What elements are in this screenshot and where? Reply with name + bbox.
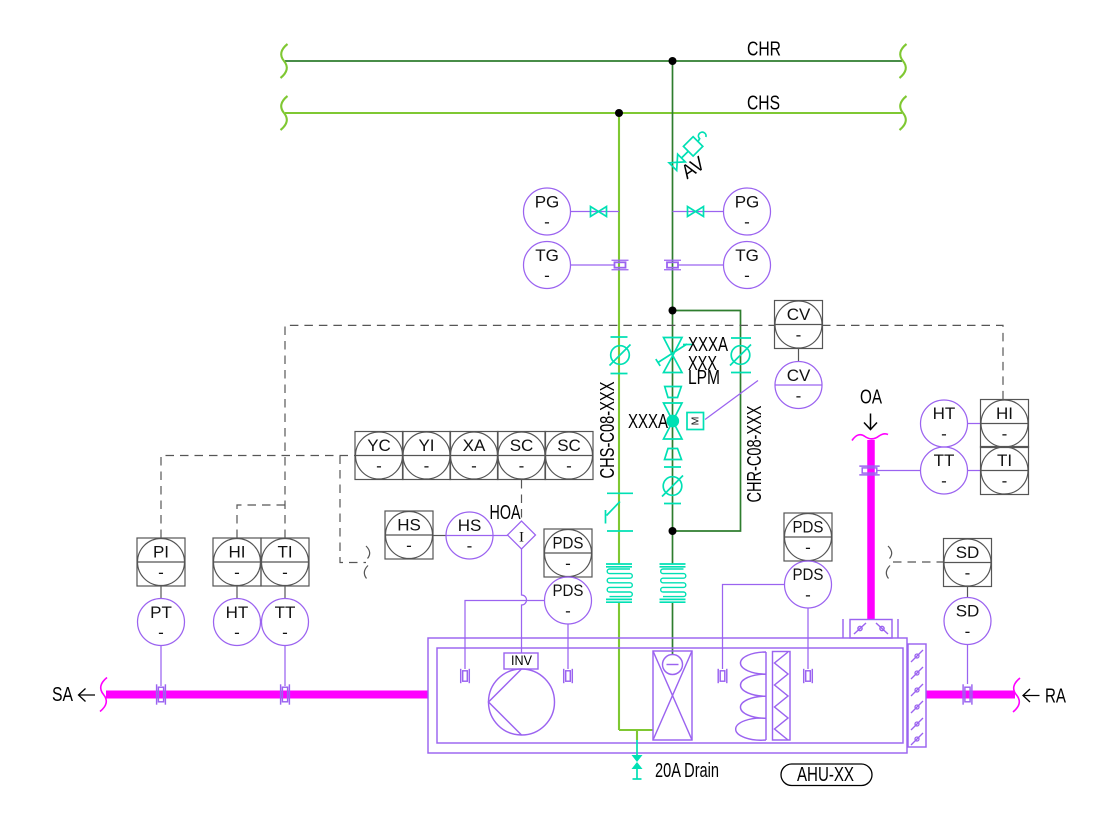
svg-text:PT: PT <box>150 603 172 622</box>
svg-text:SC: SC <box>557 436 581 455</box>
svg-text:PDS: PDS <box>793 518 824 537</box>
svg-text:RA: RA <box>1045 686 1066 708</box>
svg-text:TI: TI <box>997 451 1012 470</box>
svg-text:HT: HT <box>226 603 249 622</box>
svg-text:CV: CV <box>787 305 811 324</box>
svg-text:-: - <box>376 457 382 476</box>
svg-text:PG: PG <box>735 193 760 212</box>
svg-text:-: - <box>796 326 802 345</box>
svg-text:-: - <box>941 425 947 444</box>
svg-text:20A Drain: 20A Drain <box>655 760 719 782</box>
svg-text:-: - <box>424 457 430 476</box>
svg-text:SD: SD <box>956 602 980 621</box>
svg-text:M: M <box>690 417 702 426</box>
svg-text:PG: PG <box>535 193 560 212</box>
svg-text:-: - <box>519 457 525 476</box>
svg-text:SD: SD <box>956 543 980 562</box>
svg-text:CV: CV <box>787 366 811 385</box>
svg-text:-: - <box>234 623 240 642</box>
svg-text:CHR-C08-XXX: CHR-C08-XXX <box>744 406 766 503</box>
svg-text:-: - <box>566 457 572 476</box>
svg-text:HI: HI <box>229 543 246 562</box>
svg-text:-: - <box>1002 425 1008 444</box>
svg-text:-: - <box>158 623 164 642</box>
svg-text:CHS-C08-XXX: CHS-C08-XXX <box>597 382 619 479</box>
svg-text:-: - <box>796 387 802 406</box>
svg-text:HS: HS <box>458 516 482 535</box>
svg-text:PDS: PDS <box>793 565 824 584</box>
svg-text:I: I <box>519 530 524 546</box>
svg-text:TT: TT <box>275 603 296 622</box>
svg-text:HS: HS <box>397 516 421 535</box>
svg-text:TG: TG <box>535 246 559 265</box>
svg-text:-: - <box>941 472 947 491</box>
svg-text:YC: YC <box>367 436 391 455</box>
svg-text:-: - <box>234 563 240 582</box>
svg-text:PDS: PDS <box>553 581 584 600</box>
svg-text:-: - <box>744 266 750 285</box>
svg-text:OA: OA <box>860 387 882 409</box>
svg-text:TG: TG <box>735 246 759 265</box>
svg-text:CHR: CHR <box>747 39 781 61</box>
svg-text:-: - <box>282 563 288 582</box>
svg-text:-: - <box>406 536 412 555</box>
svg-text:TT: TT <box>934 451 955 470</box>
svg-text:TI: TI <box>277 543 292 562</box>
svg-text:HI: HI <box>996 404 1013 423</box>
svg-text:XA: XA <box>463 436 486 455</box>
svg-text:-: - <box>544 213 550 232</box>
svg-text:HOA: HOA <box>490 502 521 524</box>
svg-text:-: - <box>965 622 971 641</box>
svg-text:-: - <box>805 538 811 557</box>
svg-text:SC: SC <box>510 436 534 455</box>
svg-text:PI: PI <box>153 543 169 562</box>
svg-text:-: - <box>965 564 971 583</box>
svg-text:PDS: PDS <box>553 534 584 553</box>
svg-text:YI: YI <box>418 436 434 455</box>
svg-text:LPM: LPM <box>688 367 720 389</box>
svg-text:-: - <box>565 602 571 621</box>
svg-text:-: - <box>565 554 571 573</box>
svg-text:INV: INV <box>511 652 533 668</box>
svg-text:-: - <box>158 563 164 582</box>
svg-text:-: - <box>805 586 811 605</box>
svg-text:HT: HT <box>933 404 956 423</box>
svg-text:XXXA: XXXA <box>628 411 668 433</box>
svg-text:-: - <box>544 266 550 285</box>
svg-text:SA: SA <box>52 684 74 706</box>
svg-text:CHS: CHS <box>747 93 780 115</box>
svg-text:-: - <box>467 537 473 556</box>
svg-text:-: - <box>471 457 477 476</box>
svg-text:-: - <box>744 213 750 232</box>
svg-text:-: - <box>1002 472 1008 491</box>
svg-text:-: - <box>282 623 288 642</box>
svg-text:AHU-XX: AHU-XX <box>797 764 854 786</box>
